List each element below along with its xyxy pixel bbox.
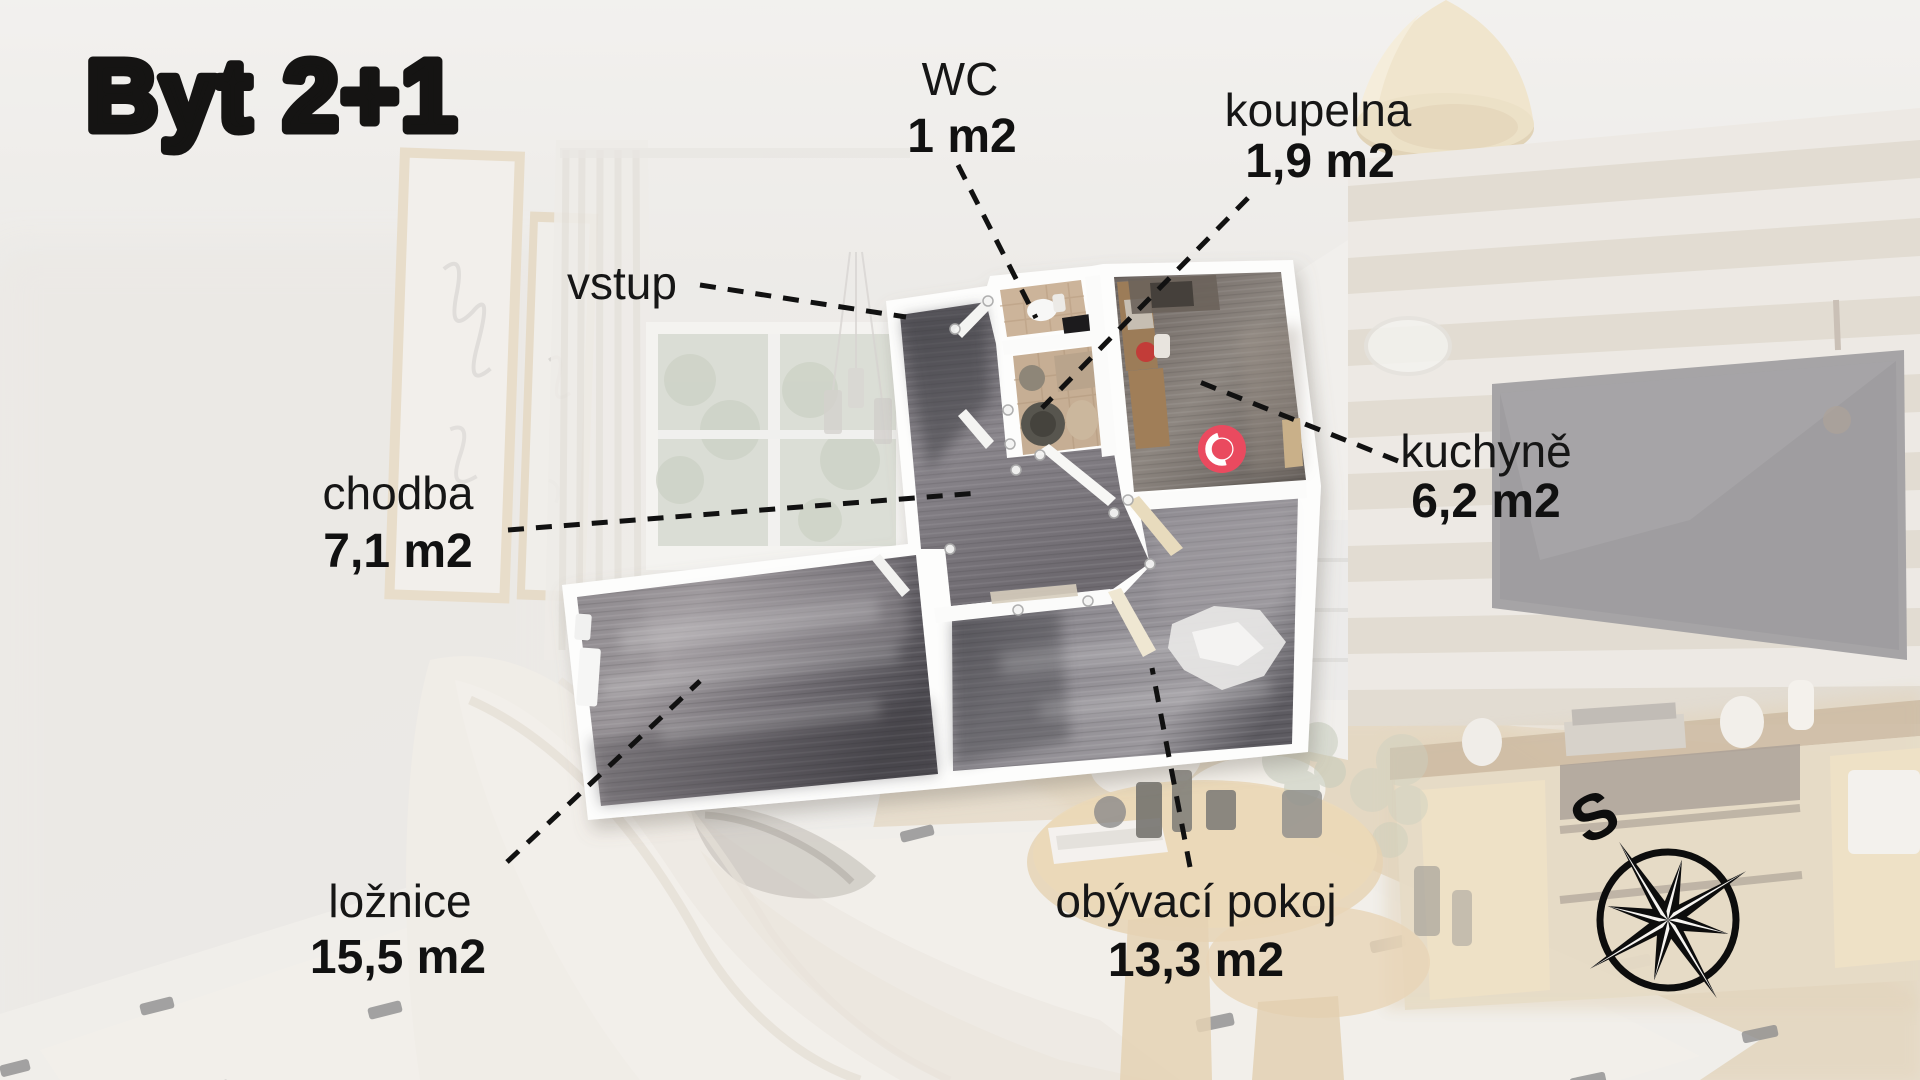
svg-text:koupelna: koupelna: [1225, 84, 1412, 136]
svg-text:13,3 m2: 13,3 m2: [1108, 934, 1284, 987]
svg-text:vstup: vstup: [567, 257, 677, 309]
svg-text:6,2 m2: 6,2 m2: [1411, 475, 1560, 528]
svg-text:1,9 m2: 1,9 m2: [1245, 135, 1394, 188]
svg-text:kuchyně: kuchyně: [1400, 425, 1571, 477]
svg-text:15,5 m2: 15,5 m2: [310, 931, 486, 984]
svg-text:Byt 2+1: Byt 2+1: [86, 40, 459, 152]
svg-text:WC: WC: [922, 53, 999, 105]
svg-text:1 m2: 1 m2: [907, 110, 1016, 163]
svg-text:obývací pokoj: obývací pokoj: [1055, 875, 1336, 927]
svg-text:chodba: chodba: [323, 467, 474, 519]
svg-text:7,1 m2: 7,1 m2: [323, 525, 472, 578]
svg-text:ložnice: ložnice: [328, 875, 471, 927]
